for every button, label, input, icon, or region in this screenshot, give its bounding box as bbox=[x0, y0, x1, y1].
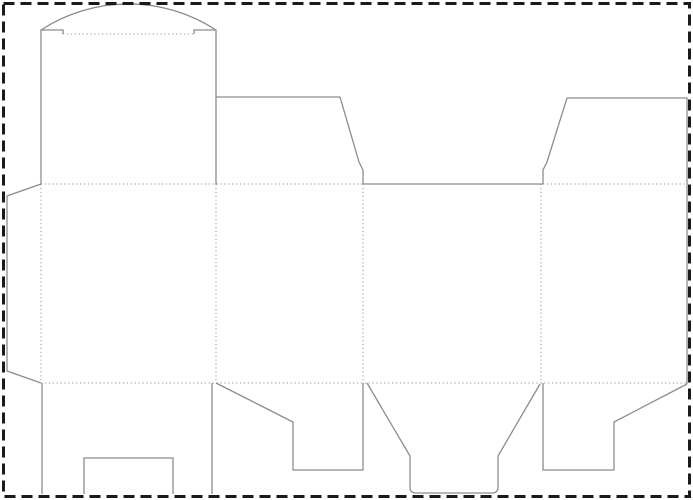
cut-line-glue-flap-outline bbox=[7, 184, 41, 383]
cut-line-dust-flap-right-top bbox=[543, 98, 687, 384]
cut-line-bottom-flap-side-right bbox=[543, 383, 687, 470]
cut-line-bottom-flap-back bbox=[367, 383, 540, 493]
cut-line-lock-flap-notch bbox=[84, 458, 173, 494]
cut-line-dust-flap-left-top bbox=[216, 97, 363, 184]
artboard-dashed-border bbox=[4, 4, 690, 497]
cut-line-lid-left-shoulder bbox=[41, 30, 63, 184]
cut-line-bottom-flap-side-left bbox=[216, 383, 363, 470]
cut-line-lid-right-shoulder bbox=[194, 30, 216, 184]
dieline-drawing bbox=[0, 0, 693, 500]
cut-line-tuck-flap-arc bbox=[41, 4, 216, 30]
dieline-canvas bbox=[0, 0, 693, 500]
